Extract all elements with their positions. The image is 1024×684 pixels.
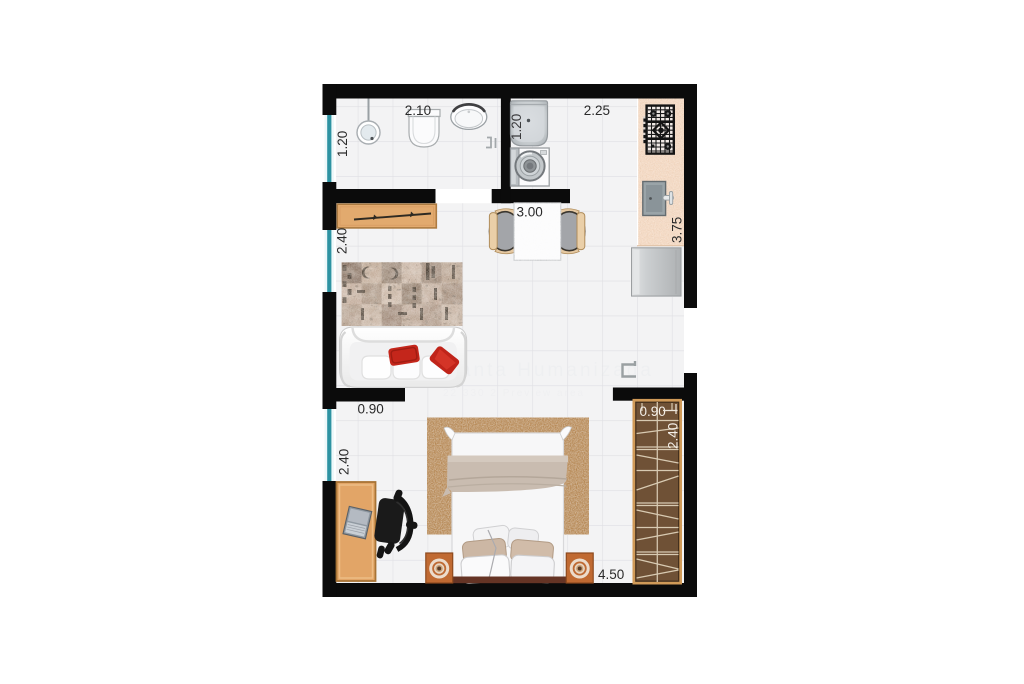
svg-text:2.40: 2.40 xyxy=(337,449,352,475)
svg-text:0.90: 0.90 xyxy=(358,402,384,417)
svg-text:1.20: 1.20 xyxy=(509,114,524,140)
svg-text:0.90: 0.90 xyxy=(640,404,666,419)
svg-text:1.20: 1.20 xyxy=(335,131,350,157)
svg-text:2.10: 2.10 xyxy=(405,103,431,118)
svg-text:3.75: 3.75 xyxy=(670,217,685,243)
svg-text:3.00: 3.00 xyxy=(517,205,543,220)
svg-text:4.50: 4.50 xyxy=(598,567,624,582)
svg-text:22 330 2 Preview area: 22 330 2 Preview area xyxy=(443,388,585,399)
svg-text:2.40: 2.40 xyxy=(335,228,350,254)
svg-text:anta Humanizada: anta Humanizada xyxy=(460,360,654,381)
svg-text:2.40: 2.40 xyxy=(666,423,681,449)
svg-text:2.25: 2.25 xyxy=(584,103,610,118)
